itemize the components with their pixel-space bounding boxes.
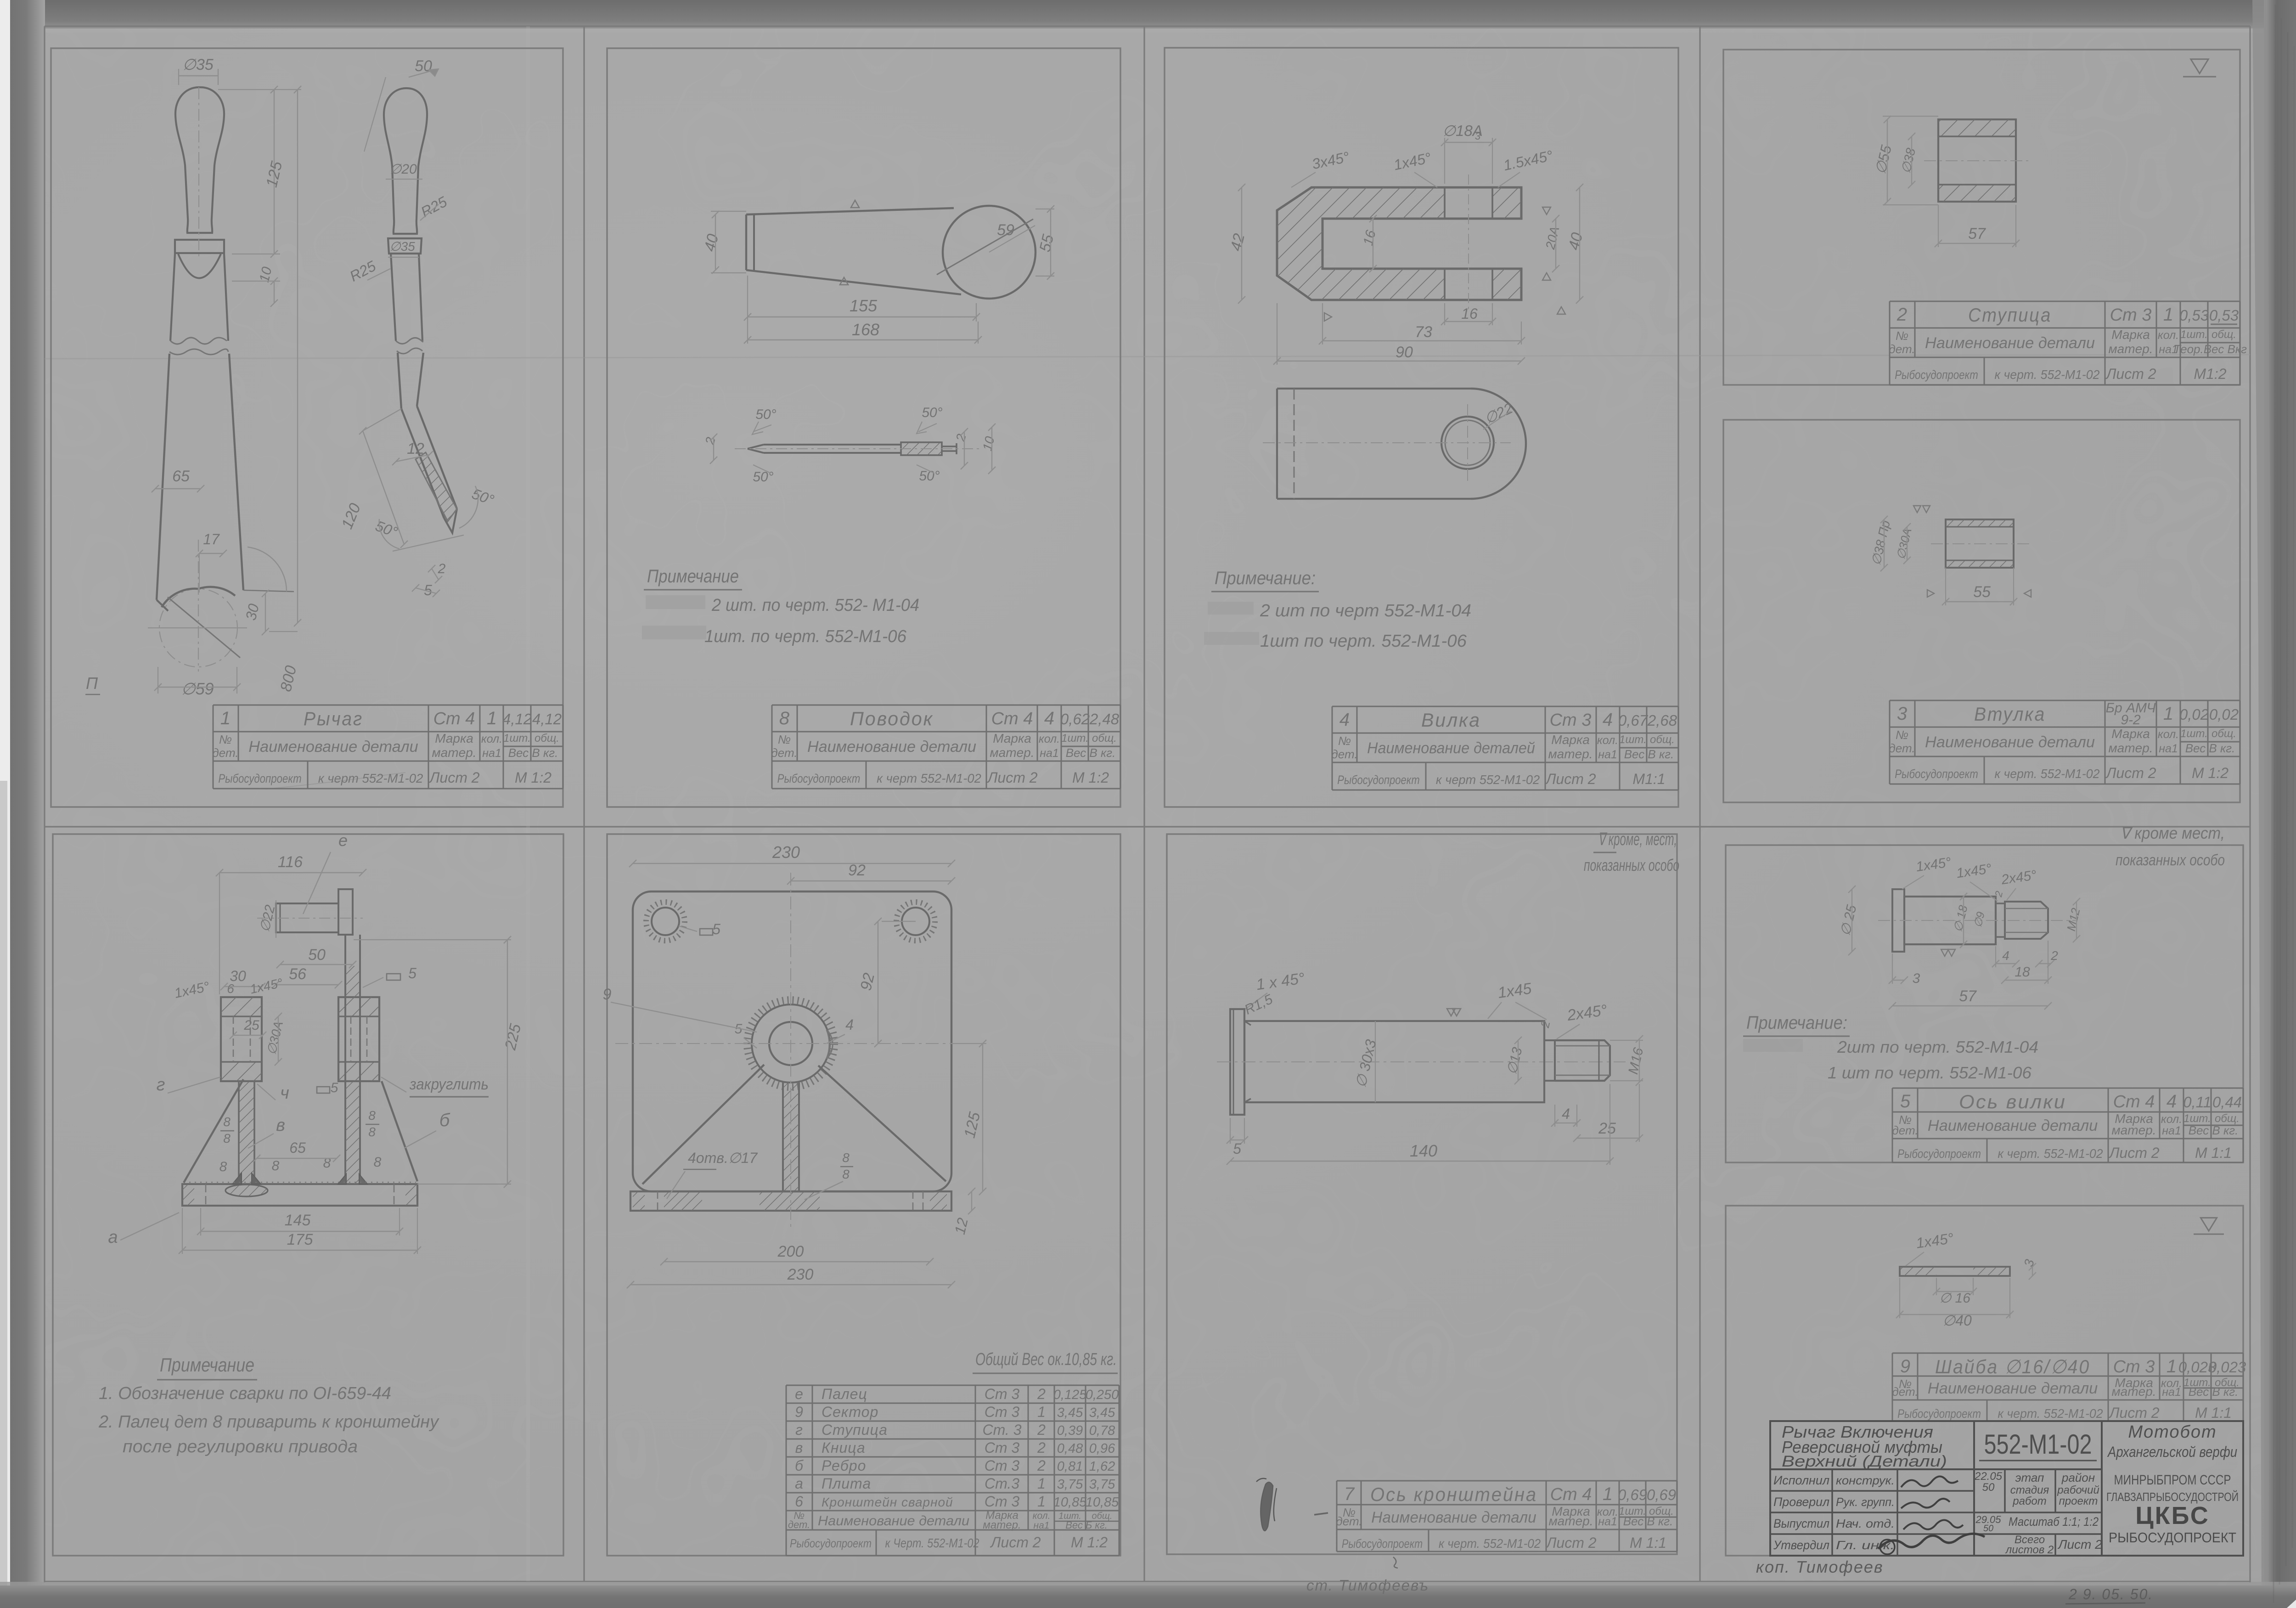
svg-text:кол.: кол. (1597, 734, 1618, 747)
svg-text:Нач. отд.: Нач. отд. (1836, 1517, 1895, 1530)
svg-text:проект: проект (2059, 1495, 2098, 1507)
svg-text:М 1:2: М 1:2 (1071, 1534, 1108, 1551)
svg-text:50°: 50° (922, 405, 942, 420)
svg-text:1 шт по черт. 552-М1-06: 1 шт по черт. 552-М1-06 (1828, 1063, 2032, 1082)
svg-text:50: 50 (1982, 1481, 1995, 1494)
svg-text:матер.: матер. (432, 745, 476, 760)
svg-text:230: 230 (787, 1266, 814, 1283)
svg-text:∅ 16: ∅ 16 (1939, 1291, 1970, 1306)
svg-text:Ст 3: Ст 3 (985, 1439, 1020, 1456)
svg-text:1шт.: 1шт. (2180, 328, 2208, 341)
svg-text:кол.: кол. (2161, 1113, 2182, 1126)
svg-text:3,75: 3,75 (1089, 1477, 1115, 1492)
svg-text:0,48: 0,48 (1057, 1441, 1083, 1456)
svg-text:1шт. по черт. 552-М1-06: 1шт. по черт. 552-М1-06 (704, 627, 907, 646)
svg-text:65: 65 (289, 1140, 306, 1156)
svg-text:25: 25 (243, 1018, 259, 1033)
svg-text:на1: на1 (1598, 1515, 1617, 1528)
svg-text:Наименование детали: Наименование детали (1371, 1509, 1536, 1526)
svg-text:на1: на1 (2159, 742, 2178, 755)
svg-text:0,53: 0,53 (2179, 307, 2209, 324)
svg-text:9: 9 (1900, 1356, 1910, 1377)
svg-text:Примечание: Примечание (160, 1354, 254, 1376)
svg-text:9: 9 (795, 1404, 803, 1420)
svg-text:район: район (2061, 1471, 2095, 1484)
svg-text:матер.: матер. (1548, 747, 1593, 761)
svg-text:∅35: ∅35 (182, 56, 214, 73)
svg-text:Сектор: Сектор (822, 1404, 878, 1420)
svg-text:1: 1 (487, 708, 497, 728)
svg-text:1шт.: 1шт. (2183, 1112, 2211, 1125)
svg-text:коп. Тимофеев: коп. Тимофеев (1756, 1557, 1884, 1576)
svg-text:Мотобот: Мотобот (2128, 1422, 2217, 1442)
svg-text:после регулировки привода: после регулировки привода (123, 1437, 358, 1456)
svg-text:Ось вилки: Ось вилки (1959, 1091, 2066, 1112)
svg-text:2: 2 (2050, 948, 2058, 963)
svg-text:0,69: 0,69 (1618, 1486, 1647, 1503)
svg-text:8: 8 (779, 708, 790, 728)
svg-text:Ст 4: Ст 4 (2113, 1092, 2155, 1111)
svg-text:Ст 4: Ст 4 (991, 709, 1033, 728)
svg-text:8: 8 (842, 1151, 850, 1165)
svg-text:18: 18 (2015, 965, 2030, 980)
svg-text:1шт.: 1шт. (2180, 728, 2208, 740)
svg-text:матер.: матер. (2108, 741, 2153, 755)
svg-text:дет.: дет. (771, 746, 797, 760)
svg-text:матер.: матер. (2111, 1384, 2156, 1399)
svg-text:дет.: дет. (1336, 1514, 1362, 1528)
svg-text:3: 3 (1475, 130, 1481, 142)
svg-text:Рук. групп.: Рук. групп. (1836, 1495, 1895, 1509)
svg-text:90: 90 (1396, 344, 1413, 361)
svg-text:8: 8 (368, 1108, 376, 1123)
svg-text:1,62: 1,62 (1089, 1459, 1115, 1474)
svg-text:0,62: 0,62 (1060, 711, 1090, 728)
svg-text:Наименование детали: Наименование детали (1928, 1117, 2098, 1134)
svg-text:92: 92 (848, 862, 866, 879)
svg-text:9-2: 9-2 (2121, 712, 2141, 728)
svg-text:Наименование детали: Наименование детали (1928, 1380, 2098, 1397)
svg-text:Рыбосудопроект: Рыбосудопроект (1895, 368, 1978, 382)
svg-text:2 шт по черт 552-М1-04: 2 шт по черт 552-М1-04 (1260, 601, 1471, 621)
svg-text:2. Палец дет 8 приварить к: 2. Палец дет 8 приварить к кронштейну (98, 1412, 439, 1432)
svg-text:г: г (795, 1422, 803, 1438)
svg-text:Лист 2: Лист 2 (1545, 771, 1596, 787)
svg-text:Рыбосудопроект: Рыбосудопроект (777, 772, 861, 785)
svg-text:к черт. 552-М1-02: к черт. 552-М1-02 (1995, 767, 2100, 781)
svg-text:50°: 50° (755, 407, 776, 422)
svg-text:1шт.: 1шт. (1061, 732, 1089, 745)
svg-text:0,02: 0,02 (2209, 706, 2239, 723)
svg-text:Ст 3: Ст 3 (2110, 305, 2152, 325)
svg-text:Плита: Плита (822, 1475, 871, 1492)
svg-text:матер.: матер. (990, 745, 1034, 760)
svg-text:листов 2: листов 2 (2005, 1544, 2054, 1556)
svg-text:1: 1 (2163, 704, 2173, 724)
svg-text:1: 1 (220, 708, 231, 728)
svg-text:4: 4 (1339, 710, 1350, 730)
svg-text:7: 7 (1344, 1484, 1355, 1504)
svg-text:матер.: матер. (983, 1519, 1021, 1531)
svg-text:к Черт. 552-М1-02: к Черт. 552-М1-02 (885, 1536, 979, 1550)
svg-text:0,39: 0,39 (1057, 1423, 1083, 1438)
svg-text:4: 4 (1603, 710, 1613, 730)
svg-text:2: 2 (1037, 1386, 1046, 1402)
svg-text:1: 1 (1037, 1493, 1046, 1510)
svg-text:Рыбосудопроект: Рыбосудопроект (1897, 1147, 1981, 1161)
svg-text:Наименование детали: Наименование детали (807, 738, 976, 756)
svg-text:кол.: кол. (1039, 733, 1060, 745)
svg-text:М 1:2: М 1:2 (515, 769, 551, 786)
svg-text:17: 17 (203, 531, 220, 547)
svg-text:4,12: 4,12 (532, 711, 562, 728)
svg-text:1шт по черт. 552-М1-06: 1шт по черт. 552-М1-06 (1260, 632, 1467, 651)
svg-text:56: 56 (289, 965, 306, 983)
svg-text:к черт. 552-М1-02: к черт. 552-М1-02 (1998, 1146, 2103, 1161)
svg-text:3: 3 (1913, 971, 1920, 986)
svg-text:25: 25 (1598, 1120, 1616, 1137)
svg-text:Ст 4: Ст 4 (1550, 1485, 1592, 1504)
svg-text:Исполнил: Исполнил (1773, 1473, 1829, 1487)
svg-text:0,53: 0,53 (2209, 307, 2239, 324)
svg-text:Ст 3: Ст 3 (2113, 1357, 2155, 1377)
svg-text:Вес В кг.: Вес В кг. (1066, 746, 1116, 760)
svg-text:Ст 4: Ст 4 (433, 709, 475, 728)
svg-text:кол.: кол. (2158, 329, 2179, 342)
svg-text:Ст 3: Ст 3 (985, 1404, 1020, 1420)
svg-text:а: а (108, 1228, 118, 1247)
svg-text:0,67: 0,67 (1618, 712, 1649, 729)
svg-text:Ось кронштейна: Ось кронштейна (1370, 1484, 1537, 1505)
svg-text:Лист 2: Лист 2 (2108, 1145, 2159, 1161)
svg-text:0,44: 0,44 (2212, 1094, 2242, 1111)
svg-text:Вес В кг.: Вес В кг. (2189, 1123, 2239, 1137)
svg-text:матер.: матер. (2111, 1123, 2156, 1137)
svg-text:Марка: Марка (435, 731, 473, 745)
svg-text:на1: на1 (482, 747, 501, 760)
svg-text:П: П (86, 674, 98, 693)
svg-text:Ступица: Ступица (822, 1422, 888, 1438)
svg-text:Ст.3: Ст.3 (985, 1475, 1019, 1492)
svg-text:0,69: 0,69 (1647, 1486, 1676, 1503)
svg-text:6: 6 (795, 1493, 803, 1510)
svg-text:4: 4 (2167, 1091, 2177, 1111)
svg-text:дет.: дет. (212, 746, 238, 760)
svg-text:0,78: 0,78 (1089, 1423, 1115, 1438)
svg-text:дет.: дет. (1889, 342, 1915, 356)
svg-text:Ст 3: Ст 3 (985, 1386, 1020, 1402)
svg-text:2: 2 (1896, 305, 1907, 325)
svg-text:4: 4 (1044, 708, 1054, 728)
svg-text:∅59: ∅59 (181, 679, 214, 698)
svg-text:к черт. 552-М1-02: к черт. 552-М1-02 (1995, 367, 2100, 382)
svg-text:Выпустил: Выпустил (1773, 1517, 1829, 1530)
svg-text:Наименование детали: Наименование детали (818, 1513, 969, 1529)
svg-text:стадия: стадия (2010, 1484, 2049, 1496)
svg-text:рабочий: рабочий (2057, 1484, 2099, 1496)
svg-text:Лист 2: Лист 2 (428, 769, 479, 786)
svg-text:Лист 2: Лист 2 (2108, 1405, 2159, 1421)
svg-text:230: 230 (772, 843, 800, 862)
svg-text:4: 4 (1562, 1106, 1570, 1122)
svg-text:кол.: кол. (2158, 728, 2179, 741)
svg-text:№: № (1896, 329, 1908, 343)
svg-text:к черт 552-М1-02: к черт 552-М1-02 (1436, 773, 1540, 787)
svg-text:2: 2 (1037, 1439, 1046, 1456)
svg-text:16: 16 (1461, 305, 1478, 322)
svg-text:10,85: 10,85 (1086, 1495, 1119, 1510)
svg-text:е: е (795, 1386, 803, 1402)
svg-text:3: 3 (1897, 704, 1907, 724)
svg-text:Наименование детали: Наименование детали (1925, 334, 2095, 352)
svg-text:8: 8 (842, 1167, 850, 1181)
svg-text:Лист 2: Лист 2 (986, 769, 1037, 786)
svg-text:145: 145 (285, 1212, 311, 1229)
svg-text:общ.: общ. (2215, 1112, 2240, 1125)
svg-text:к черт. 552-М1-02: к черт. 552-М1-02 (1439, 1536, 1541, 1551)
svg-text:1: 1 (2163, 305, 2173, 325)
svg-text:0,02: 0,02 (2179, 706, 2209, 723)
svg-text:Теор.Вес Вкг: Теор.Вес Вкг (2173, 342, 2247, 356)
svg-text:Вес В кг.: Вес В кг. (508, 746, 558, 760)
svg-text:Ст 3: Ст 3 (985, 1457, 1020, 1474)
svg-text:Рыбосудопроект: Рыбосудопроект (1895, 767, 1978, 781)
svg-text:∅20: ∅20 (389, 162, 417, 177)
svg-text:Ст 3: Ст 3 (1550, 711, 1592, 730)
svg-text:3,45: 3,45 (1089, 1405, 1115, 1420)
svg-text:Архангельской верфи: Архангельской верфи (2107, 1444, 2237, 1460)
svg-text:№: № (1896, 728, 1908, 742)
svg-text:ст. Тимофеевъ: ст. Тимофеевъ (1306, 1577, 1429, 1594)
svg-text:матер.: матер. (1548, 1514, 1593, 1528)
svg-text:50: 50 (415, 57, 432, 75)
svg-text:Примечание:: Примечание: (1215, 568, 1316, 588)
svg-text:М1:2: М1:2 (2194, 366, 2226, 382)
svg-text:Лист 2: Лист 2 (990, 1534, 1041, 1551)
svg-text:Рыбосудопроект: Рыбосудопроект (1342, 1537, 1423, 1551)
svg-text:Лист 2: Лист 2 (2105, 765, 2156, 781)
svg-text:59: 59 (997, 221, 1014, 239)
svg-text:кол.: кол. (481, 733, 502, 745)
svg-text:6: 6 (227, 982, 234, 996)
svg-text:дет.: дет. (788, 1519, 810, 1530)
svg-text:М 1:2: М 1:2 (2192, 765, 2228, 781)
svg-text:Марка: Марка (2111, 727, 2150, 741)
svg-text:М 1:1: М 1:1 (1630, 1535, 1666, 1551)
svg-text:50: 50 (1983, 1523, 1993, 1534)
svg-text:показанных особо: показанных особо (2116, 852, 2225, 869)
svg-text:175: 175 (287, 1231, 313, 1248)
svg-text:4: 4 (845, 1016, 854, 1033)
svg-text:Кронштейн сварной: Кронштейн сварной (822, 1495, 953, 1509)
svg-text:10,85: 10,85 (1053, 1495, 1087, 1510)
svg-text:0,96: 0,96 (1089, 1441, 1115, 1456)
svg-text:∅40: ∅40 (1942, 1312, 1972, 1329)
svg-text:8: 8 (223, 1115, 231, 1129)
svg-text:57: 57 (1968, 225, 1986, 243)
svg-text:168: 168 (852, 320, 879, 339)
svg-text:Утвердил: Утвердил (1773, 1538, 1829, 1552)
svg-text:0,250: 0,250 (1086, 1388, 1119, 1402)
svg-text:2,48: 2,48 (1089, 711, 1120, 728)
svg-text:∇ кроме, мест,: ∇ кроме, мест, (1598, 830, 1677, 849)
svg-text:Наименование детали: Наименование детали (248, 738, 418, 756)
svg-text:а: а (795, 1475, 803, 1492)
svg-text:22.05: 22.05 (1974, 1470, 2003, 1483)
svg-text:Верхний (Детали): Верхний (Детали) (1782, 1453, 1947, 1470)
svg-text:общ.: общ. (1092, 732, 1117, 745)
svg-text:закруглить: закруглить (409, 1076, 489, 1093)
svg-text:на1: на1 (1034, 1520, 1050, 1531)
svg-text:дет.: дет. (1892, 1385, 1918, 1399)
svg-text:в: в (795, 1439, 803, 1456)
svg-text:на1: на1 (1598, 748, 1617, 761)
svg-text:Ребро: Ребро (822, 1457, 866, 1474)
svg-text:РЫБОСУДОПРОЕКТ: РЫБОСУДОПРОЕКТ (2109, 1529, 2236, 1546)
svg-text:12: 12 (407, 440, 424, 457)
svg-text:МИНРЫБПРОМ СССР: МИНРЫБПРОМ СССР (2114, 1473, 2231, 1488)
svg-text:50: 50 (308, 946, 326, 964)
svg-text:Поводок: Поводок (850, 708, 934, 729)
svg-text:Вес В кг.: Вес В кг. (1624, 747, 1674, 761)
svg-text:на1: на1 (1040, 747, 1059, 760)
svg-text:3,75: 3,75 (1057, 1477, 1083, 1492)
svg-text:дет.: дет. (1889, 741, 1915, 755)
svg-text:55: 55 (1973, 583, 1991, 601)
svg-text:8: 8 (223, 1131, 231, 1145)
svg-text:5: 5 (408, 965, 416, 982)
svg-text:∇ кроме мест,: ∇ кроме мест, (2120, 824, 2225, 842)
svg-text:Примечание:: Примечание: (1746, 1013, 1847, 1033)
svg-text:Вес В кг.: Вес В кг. (2185, 741, 2235, 755)
svg-text:Втулка: Втулка (1974, 703, 2046, 725)
svg-text:Проверил: Проверил (1773, 1495, 1829, 1509)
svg-text:Ступица: Ступица (1968, 304, 2052, 326)
svg-text:общ.: общ. (1650, 733, 1675, 746)
svg-text:дет.: дет. (1331, 747, 1357, 761)
svg-text:1: 1 (1037, 1404, 1046, 1420)
svg-text:1. Обозначение сварки по ОІ-: 1. Обозначение сварки по ОІ-659-44 (99, 1384, 391, 1403)
svg-text:2 шт. по черт. 552- М1-04: 2 шт. по черт. 552- М1-04 (711, 596, 919, 615)
svg-text:г: г (157, 1075, 165, 1095)
svg-text:к черт 552-М1-02: к черт 552-М1-02 (877, 771, 981, 785)
svg-text:Масштаб 1:1; 1:2: Масштаб 1:1; 1:2 (2009, 1515, 2099, 1529)
svg-text:Примечание: Примечание (647, 566, 739, 587)
svg-text:73: 73 (1415, 323, 1432, 341)
svg-text:к черт. 552-М1-02: к черт. 552-М1-02 (1998, 1406, 2103, 1421)
svg-text:∅35: ∅35 (389, 239, 415, 254)
svg-text:1шт.: 1шт. (503, 732, 531, 745)
svg-text:на1: на1 (2162, 1386, 2181, 1399)
svg-text:0,81: 0,81 (1057, 1459, 1083, 1474)
svg-text:Рыбосудопроект: Рыбосудопроект (1897, 1407, 1981, 1421)
svg-text:140: 140 (1410, 1141, 1437, 1160)
svg-text:показанных особо: показанных особо (1584, 856, 1679, 875)
svg-text:1: 1 (2167, 1356, 2177, 1377)
svg-text:50°: 50° (753, 469, 773, 485)
svg-text:1: 1 (1037, 1475, 1046, 1492)
svg-text:8: 8 (374, 1155, 382, 1170)
svg-text:Рыбосудопроект: Рыбосудопроект (1337, 773, 1419, 787)
svg-text:Палец: Палец (822, 1386, 867, 1402)
svg-text:Ст 3: Ст 3 (985, 1493, 1020, 1510)
svg-text:Кница: Кница (822, 1439, 866, 1456)
svg-text:5: 5 (331, 1080, 338, 1095)
svg-text:Наименование деталей: Наименование деталей (1367, 739, 1535, 757)
svg-text:57: 57 (1959, 987, 1977, 1005)
svg-text:4,12: 4,12 (502, 711, 532, 728)
svg-text:5: 5 (1900, 1091, 1911, 1111)
svg-text:б: б (439, 1110, 450, 1130)
svg-text:8: 8 (272, 1158, 280, 1174)
svg-text:1: 1 (1603, 1484, 1613, 1504)
svg-text:№: № (778, 733, 791, 746)
svg-text:Лист 2: Лист 2 (2057, 1537, 2102, 1552)
svg-text:0,125: 0,125 (1053, 1388, 1087, 1402)
svg-text:к черт 552-М1-02: к черт 552-М1-02 (318, 771, 423, 785)
svg-text:М 1:2: М 1:2 (1072, 769, 1109, 786)
svg-text:матер.: матер. (2108, 342, 2153, 356)
svg-text:б: б (795, 1457, 804, 1474)
svg-text:е: е (338, 831, 348, 850)
svg-text:дет.: дет. (1892, 1123, 1918, 1137)
svg-text:ЦКБС: ЦКБС (2135, 1502, 2210, 1529)
svg-text:4отв.∅17: 4отв.∅17 (688, 1150, 758, 1166)
svg-text:Вес В кг.: Вес В кг. (2189, 1385, 2239, 1399)
svg-text:в: в (276, 1116, 285, 1135)
svg-text:3,45: 3,45 (1057, 1405, 1083, 1420)
svg-text:155: 155 (850, 296, 878, 315)
svg-text:ч: ч (280, 1083, 289, 1103)
svg-text:Рыбосудопроект: Рыбосудопроект (790, 1536, 872, 1550)
svg-text:0,11: 0,11 (2183, 1094, 2212, 1111)
svg-text:кол.: кол. (1033, 1511, 1051, 1521)
svg-text:Вес В кг.: Вес В кг. (1623, 1514, 1673, 1528)
svg-text:работ: работ (2012, 1495, 2047, 1507)
svg-text:М1:1: М1:1 (1632, 771, 1665, 787)
svg-text:2 9. 05. 50.: 2 9. 05. 50. (2068, 1586, 2153, 1602)
svg-text:2: 2 (438, 561, 446, 576)
svg-text:552-М1-02: 552-М1-02 (1984, 1429, 2092, 1460)
svg-text:конструк.: конструк. (1836, 1473, 1895, 1487)
svg-text:2,68: 2,68 (1647, 712, 1677, 729)
svg-text:общ.: общ. (2212, 728, 2236, 740)
svg-text:на1: на1 (2162, 1124, 2181, 1137)
svg-text:Марка: Марка (993, 731, 1031, 745)
svg-text:М 1:1: М 1:1 (2195, 1145, 2232, 1161)
svg-text:4: 4 (2002, 948, 2009, 963)
svg-text:Рычаг: Рычаг (304, 708, 363, 729)
svg-text:Общий Вес ок.10,85 кг.: Общий Вес ок.10,85 кг. (975, 1350, 1117, 1369)
svg-text:Лист 2: Лист 2 (2105, 366, 2156, 382)
svg-text:Рыбосудопроект: Рыбосудопроект (218, 772, 301, 785)
svg-text:8: 8 (368, 1125, 376, 1139)
svg-text:116: 116 (278, 853, 303, 871)
svg-text:Марка: Марка (1551, 733, 1590, 747)
svg-text:0,023: 0,023 (2208, 1359, 2246, 1376)
svg-text:этап: этап (2015, 1471, 2044, 1484)
svg-text:Марка: Марка (2111, 327, 2150, 342)
svg-text:общ.: общ. (535, 732, 559, 745)
svg-text:9: 9 (603, 986, 612, 1003)
svg-text:8: 8 (219, 1159, 227, 1174)
svg-text:2шт по черт. 552-М1-04: 2шт по черт. 552-М1-04 (1837, 1038, 2038, 1056)
svg-text:Шайба ∅16/∅40: Шайба ∅16/∅40 (1935, 1356, 2090, 1377)
svg-text:5: 5 (1233, 1140, 1241, 1157)
svg-text:общ.: общ. (2212, 328, 2236, 341)
svg-text:200: 200 (777, 1243, 804, 1260)
svg-text:Лист 2: Лист 2 (1545, 1535, 1596, 1551)
